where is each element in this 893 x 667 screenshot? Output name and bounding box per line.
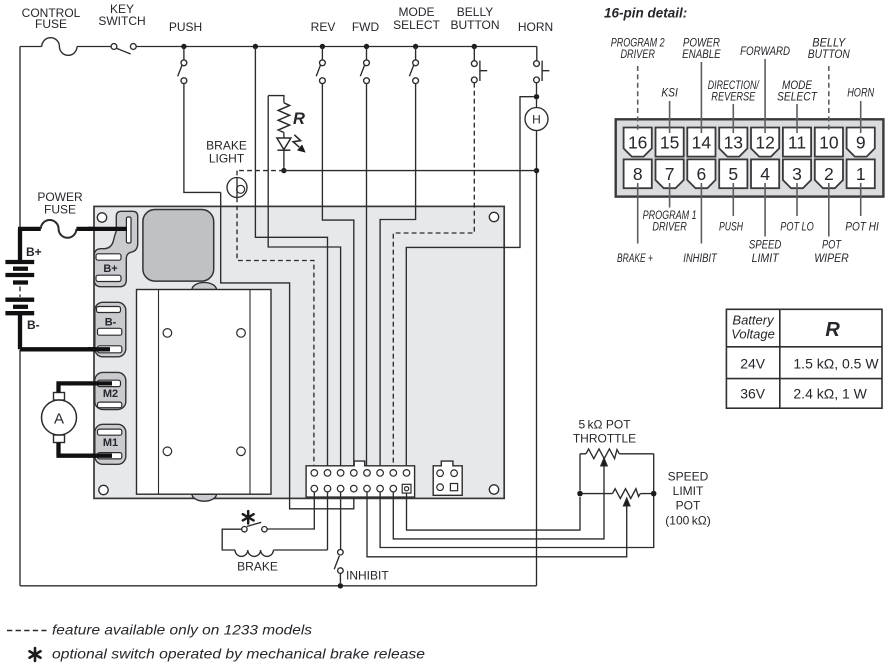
svg-text:BRAKE: BRAKE	[206, 139, 247, 153]
svg-text:HORN: HORN	[847, 88, 875, 100]
svg-text:R: R	[293, 110, 305, 128]
svg-text:15: 15	[660, 132, 679, 152]
svg-text:Battery: Battery	[732, 313, 775, 328]
svg-text:1: 1	[856, 164, 866, 184]
svg-text:POT: POT	[676, 499, 701, 513]
svg-text:2.4 kΩ, 1 W: 2.4 kΩ, 1 W	[793, 386, 867, 402]
svg-text:PUSH: PUSH	[719, 222, 744, 234]
svg-text:BELLY: BELLY	[457, 5, 493, 19]
svg-text:11: 11	[788, 132, 806, 152]
svg-text:Voltage: Voltage	[731, 327, 775, 342]
svg-text:16: 16	[628, 132, 647, 152]
svg-text:(100 kΩ): (100 kΩ)	[665, 514, 710, 528]
svg-text:SPEED: SPEED	[749, 240, 782, 252]
svg-text:M1: M1	[103, 437, 118, 449]
svg-text:optional switch operated by me: optional switch operated by mechanical b…	[52, 646, 425, 662]
svg-text:BUTTON: BUTTON	[808, 49, 851, 61]
svg-text:6: 6	[697, 164, 707, 184]
svg-text:POWER: POWER	[683, 38, 720, 50]
svg-text:KSI: KSI	[661, 88, 678, 100]
svg-text:PROGRAM 2: PROGRAM 2	[611, 38, 665, 50]
svg-text:5 kΩ POT: 5 kΩ POT	[578, 418, 631, 432]
svg-text:36V: 36V	[740, 386, 766, 402]
svg-text:DIRECTION/: DIRECTION/	[708, 80, 760, 92]
svg-text:DRIVER: DRIVER	[620, 49, 655, 61]
svg-text:7: 7	[665, 164, 675, 184]
svg-text:PUSH: PUSH	[169, 20, 202, 34]
svg-text:FORWARD: FORWARD	[740, 46, 790, 58]
svg-text:12: 12	[755, 132, 774, 152]
svg-text:LIMIT: LIMIT	[752, 253, 780, 265]
svg-text:14: 14	[692, 132, 712, 152]
svg-text:R: R	[825, 319, 840, 341]
svg-text:9: 9	[856, 132, 866, 152]
svg-text:2: 2	[824, 164, 834, 184]
svg-text:POT HI: POT HI	[845, 222, 879, 234]
svg-text:FUSE: FUSE	[44, 203, 76, 217]
svg-text:HORN: HORN	[518, 20, 553, 34]
svg-text:POT LO: POT LO	[780, 222, 814, 234]
svg-text:B+: B+	[26, 245, 42, 259]
svg-text:INHIBIT: INHIBIT	[683, 253, 717, 265]
svg-text:feature available only on 1233: feature available only on 1233 models	[52, 622, 312, 638]
svg-text:THROTTLE: THROTTLE	[573, 432, 636, 446]
svg-text:MODE: MODE	[399, 5, 435, 19]
svg-text:WIPER: WIPER	[814, 253, 849, 265]
svg-text:BELLY: BELLY	[812, 38, 846, 50]
svg-text:B+: B+	[103, 263, 117, 275]
svg-text:4: 4	[760, 164, 770, 184]
svg-text:MODE: MODE	[782, 80, 812, 92]
svg-text:3: 3	[792, 164, 802, 184]
svg-text:REV: REV	[311, 20, 336, 34]
svg-text:REVERSE: REVERSE	[711, 92, 755, 104]
svg-text:FUSE: FUSE	[35, 17, 67, 31]
svg-text:24V: 24V	[740, 356, 766, 372]
svg-text:LIGHT: LIGHT	[209, 152, 245, 166]
svg-text:B-: B-	[105, 317, 117, 329]
svg-text:8: 8	[633, 164, 643, 184]
svg-text:DRIVER: DRIVER	[652, 222, 687, 234]
svg-text:A: A	[54, 411, 64, 428]
svg-text:POT: POT	[822, 240, 842, 252]
svg-text:SWITCH: SWITCH	[98, 14, 145, 28]
svg-text:SELECT: SELECT	[393, 18, 440, 32]
svg-text:H: H	[532, 113, 541, 127]
svg-text:SPEED: SPEED	[668, 470, 709, 484]
svg-text:13: 13	[724, 132, 743, 152]
svg-text:PROGRAM 1: PROGRAM 1	[643, 210, 697, 222]
svg-text:5: 5	[728, 164, 738, 184]
svg-text:BRAKE: BRAKE	[237, 560, 278, 574]
svg-text:1.5 kΩ, 0.5 W: 1.5 kΩ, 0.5 W	[793, 356, 879, 372]
svg-text:M2: M2	[103, 388, 118, 400]
svg-text:SELECT: SELECT	[777, 92, 818, 104]
svg-text:16-pin detail:: 16-pin detail:	[604, 6, 687, 21]
svg-text:LIMIT: LIMIT	[673, 484, 704, 498]
svg-text:BUTTON: BUTTON	[450, 18, 499, 32]
svg-text:FWD: FWD	[352, 20, 380, 34]
svg-text:BRAKE +: BRAKE +	[617, 253, 653, 265]
svg-text:ENABLE: ENABLE	[682, 49, 721, 61]
svg-text:INHIBIT: INHIBIT	[346, 569, 389, 583]
svg-text:B-: B-	[27, 318, 40, 332]
svg-text:10: 10	[819, 132, 839, 152]
